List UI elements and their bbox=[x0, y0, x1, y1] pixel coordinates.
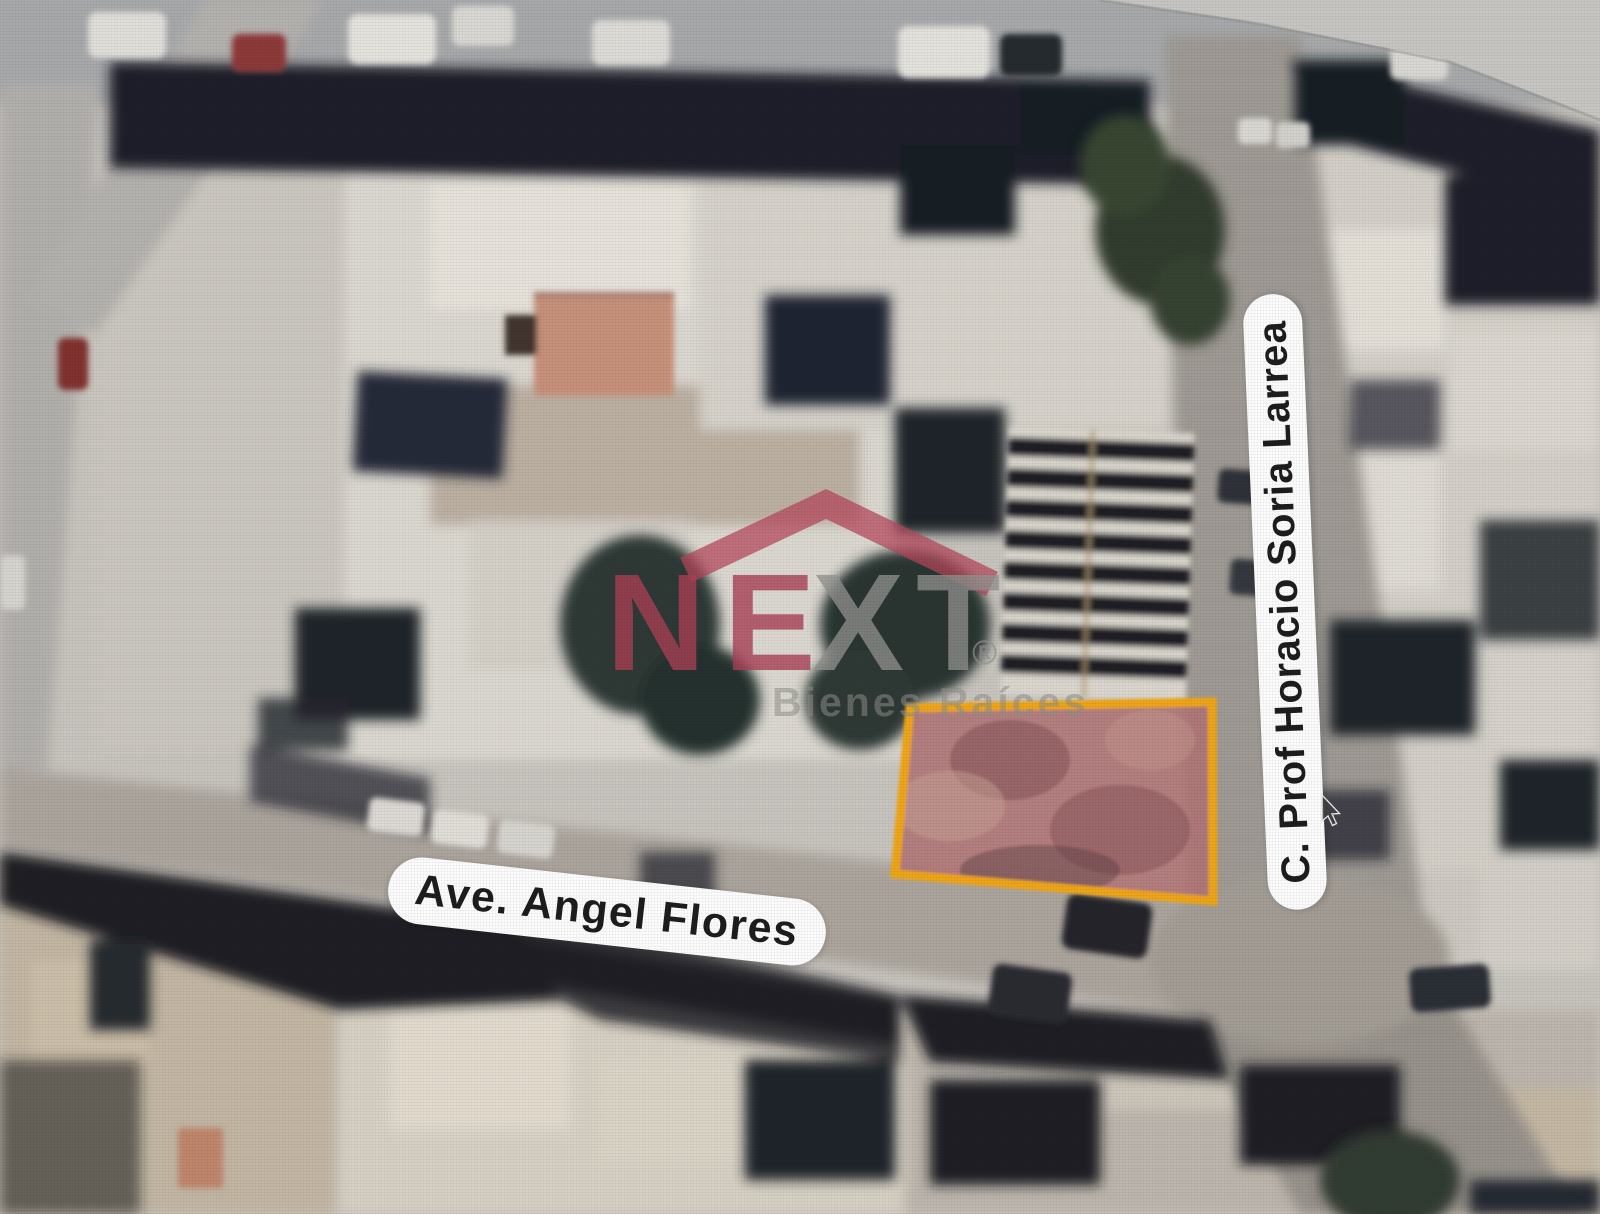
map-screenshot: NE XT ® Bienes Raíces Ave. Angel Flores … bbox=[0, 0, 1600, 1214]
satellite-imagery[interactable] bbox=[0, 0, 1600, 1214]
striped-market-roof bbox=[1000, 427, 1194, 701]
highlighted-parcel bbox=[895, 702, 1213, 901]
